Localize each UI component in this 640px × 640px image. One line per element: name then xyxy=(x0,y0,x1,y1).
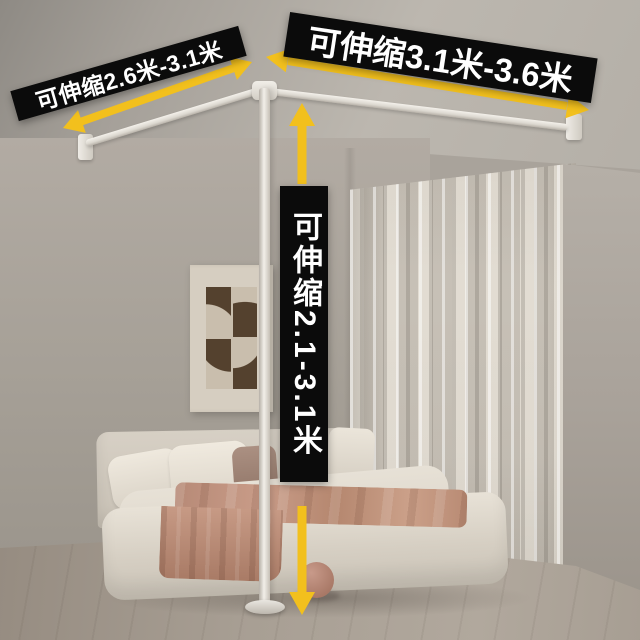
art-shape xyxy=(206,339,231,389)
art-shape xyxy=(206,287,231,337)
art-shape xyxy=(233,339,258,389)
right-wall-bracket xyxy=(566,114,582,140)
vertical-support-pole xyxy=(259,88,270,606)
product-photo-bedroom-canopy-rod: 可伸缩2.6米-3.1米 可伸缩3.1米-3.6米 可伸缩2.1-3.1米 xyxy=(0,0,640,640)
floor-cushion xyxy=(299,562,334,598)
pole-floor-base xyxy=(245,600,285,614)
wall-art-print xyxy=(206,287,257,389)
right-wall xyxy=(563,150,640,610)
label-pole-height-range: 可伸缩2.1-3.1米 xyxy=(280,186,328,482)
art-shape xyxy=(233,287,258,337)
